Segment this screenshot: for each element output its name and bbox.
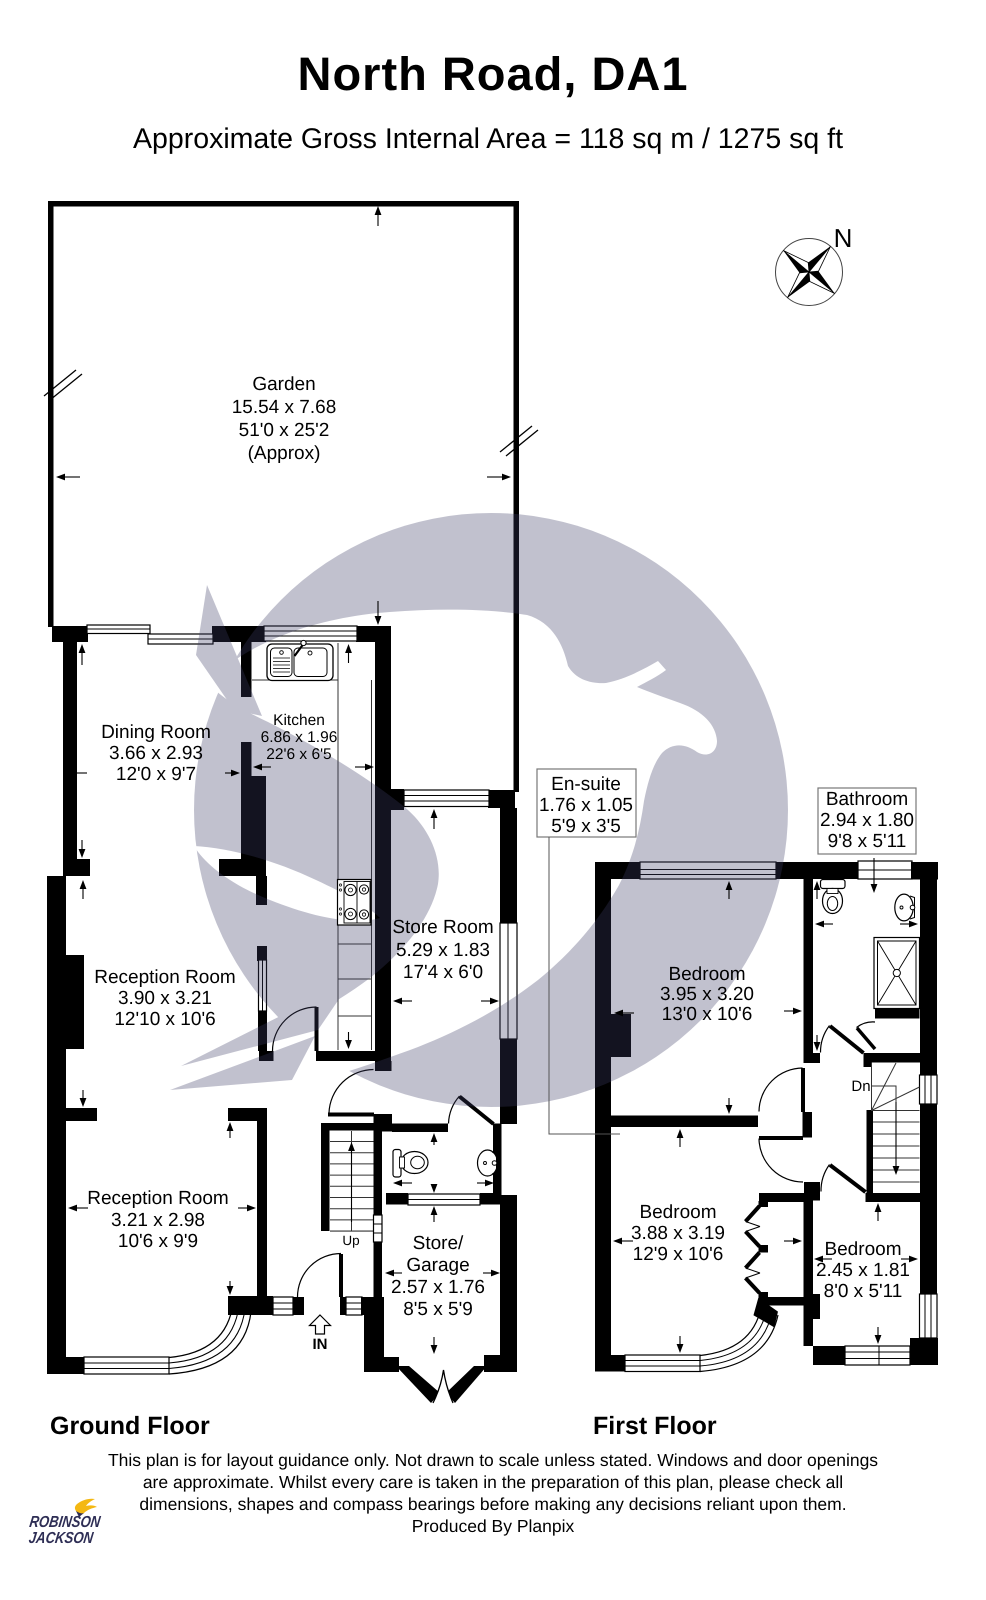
svg-text:12'9 x 10'6: 12'9 x 10'6: [633, 1244, 724, 1265]
svg-text:dimensions, shapes and compass: dimensions, shapes and compass bearings …: [139, 1494, 846, 1514]
svg-text:12'10 x 10'6: 12'10 x 10'6: [114, 1009, 215, 1030]
svg-text:Dining Room: Dining Room: [101, 722, 211, 743]
svg-text:Reception Room: Reception Room: [94, 967, 236, 988]
svg-text:Approximate Gross Internal Are: Approximate Gross Internal Area = 118 sq…: [133, 123, 843, 155]
svg-text:6.86 x 1.96: 6.86 x 1.96: [261, 729, 338, 746]
svg-text:JACKSON: JACKSON: [28, 1530, 95, 1547]
svg-text:15.54 x 7.68: 15.54 x 7.68: [232, 397, 337, 418]
svg-text:En-suite: En-suite: [551, 774, 621, 795]
svg-text:Up: Up: [342, 1233, 359, 1248]
svg-text:North Road, DA1: North Road, DA1: [298, 47, 689, 100]
svg-text:3.88 x 3.19: 3.88 x 3.19: [631, 1223, 725, 1244]
svg-text:5'9 x 3'5: 5'9 x 3'5: [551, 816, 621, 837]
svg-text:22'6 x 6'5: 22'6 x 6'5: [266, 746, 331, 763]
svg-text:First Floor: First Floor: [593, 1412, 717, 1440]
svg-text:12'0 x 9'7: 12'0 x 9'7: [116, 764, 196, 785]
svg-text:Bedroom: Bedroom: [668, 964, 745, 985]
svg-text:3.95 x 3.20: 3.95 x 3.20: [660, 984, 754, 1005]
svg-text:IN: IN: [313, 1336, 328, 1353]
svg-text:Kitchen: Kitchen: [273, 712, 325, 729]
svg-text:3.66 x 2.93: 3.66 x 2.93: [109, 743, 203, 764]
svg-text:3.21 x 2.98: 3.21 x 2.98: [111, 1210, 205, 1231]
svg-text:Produced By Planpix: Produced By Planpix: [412, 1516, 575, 1536]
svg-text:Garden: Garden: [252, 374, 315, 395]
svg-text:9'8 x 5'11: 9'8 x 5'11: [828, 831, 907, 852]
svg-text:8'5 x 5'9: 8'5 x 5'9: [403, 1299, 473, 1320]
svg-text:This plan is for layout guidan: This plan is for layout guidance only. N…: [108, 1450, 878, 1470]
svg-text:3.90 x 3.21: 3.90 x 3.21: [118, 988, 212, 1009]
svg-text:are approximate. Whilst every: are approximate. Whilst every care is ta…: [143, 1472, 843, 1492]
svg-text:Dn: Dn: [851, 1078, 870, 1095]
svg-text:Reception Room: Reception Room: [87, 1188, 229, 1209]
svg-text:N: N: [834, 223, 853, 253]
svg-text:8'0 x 5'11: 8'0 x 5'11: [824, 1281, 903, 1302]
svg-text:13'0 x 10'6: 13'0 x 10'6: [662, 1004, 753, 1025]
svg-text:2.57 x 1.76: 2.57 x 1.76: [391, 1277, 485, 1298]
svg-text:Garage: Garage: [406, 1255, 469, 1276]
svg-text:2.94 x 1.80: 2.94 x 1.80: [820, 810, 914, 831]
svg-text:5.29 x 1.83: 5.29 x 1.83: [396, 940, 490, 961]
svg-text:Bedroom: Bedroom: [639, 1202, 716, 1223]
svg-text:Store/: Store/: [413, 1233, 464, 1254]
svg-text:Ground Floor: Ground Floor: [50, 1412, 210, 1440]
svg-text:10'6 x 9'9: 10'6 x 9'9: [118, 1231, 198, 1252]
svg-text:ROBINSON: ROBINSON: [28, 1514, 101, 1531]
svg-text:17'4 x 6'0: 17'4 x 6'0: [403, 962, 483, 983]
svg-text:51'0 x 25'2: 51'0 x 25'2: [239, 420, 330, 441]
svg-text:2.45 x 1.81: 2.45 x 1.81: [816, 1260, 910, 1281]
svg-text:1.76 x 1.05: 1.76 x 1.05: [539, 795, 633, 816]
svg-text:Store Room: Store Room: [392, 917, 493, 938]
svg-text:Bedroom: Bedroom: [824, 1239, 901, 1260]
svg-text:(Approx): (Approx): [248, 443, 321, 464]
svg-text:Bathroom: Bathroom: [826, 789, 908, 810]
